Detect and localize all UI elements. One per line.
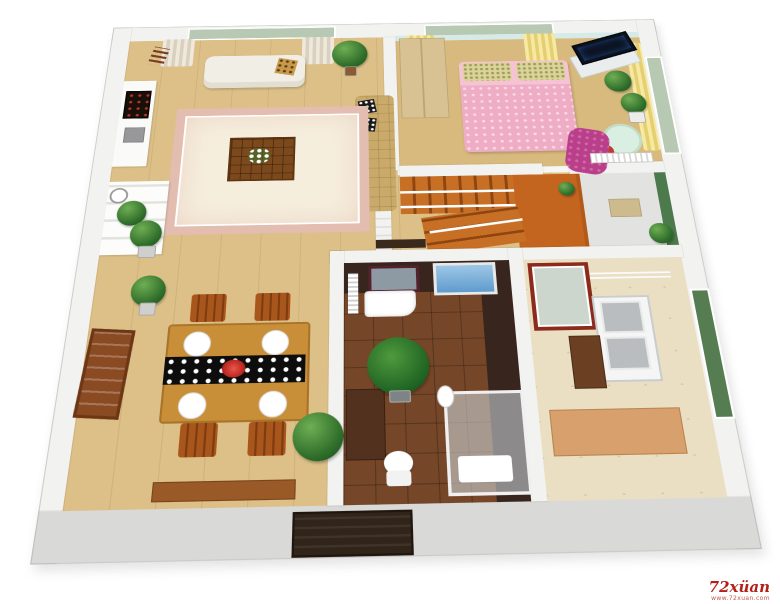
entry-door (291, 510, 413, 558)
blue-shower-door (433, 262, 498, 295)
bathroom-cabinet (346, 389, 386, 461)
shelf-plant-pot (137, 246, 156, 258)
fern-pot (389, 390, 411, 403)
door-mat (608, 198, 642, 217)
sink-basin (604, 336, 651, 370)
living-plant-pot (344, 66, 357, 76)
bed-pillow (462, 62, 512, 81)
floor-plan-render: 72xüan www.72xuan.com (0, 0, 780, 604)
dark-bench (376, 239, 426, 248)
dining-chair (254, 293, 290, 321)
magenta-chaise (564, 126, 610, 176)
low-bench (151, 479, 296, 502)
plan-exterior-walls (31, 20, 760, 564)
wall-art (122, 91, 151, 119)
radiator (590, 152, 654, 163)
sink-basin (599, 301, 645, 334)
watermark: 72xüan www.72xuan.com (709, 580, 770, 602)
bedroom-plant-pot (628, 111, 647, 122)
kitchen-counter (549, 407, 688, 456)
vanity-sink (364, 290, 416, 317)
bed-pillow (516, 62, 567, 81)
bathroom-left-wall (327, 251, 344, 506)
dining-chair (178, 423, 218, 458)
dining-chair (190, 294, 227, 322)
plan-3d-scene (31, 20, 760, 564)
living-curtain-right (302, 37, 334, 65)
red-framed-door (527, 262, 597, 331)
dining-chair (247, 421, 286, 456)
bedroom-curtain-right (523, 33, 558, 62)
toilet-tank (386, 470, 411, 486)
watermark-brand: 72xüan (709, 580, 770, 595)
watermark-site: www.72xuan.com (709, 596, 770, 602)
shower-tray (458, 455, 514, 482)
wardrobe (399, 38, 450, 119)
towel-radiator (348, 273, 358, 313)
media-box (123, 127, 146, 142)
bed-blanket (460, 84, 580, 152)
bathroom-mirror (368, 265, 420, 293)
dining-plant-pot (138, 302, 156, 315)
